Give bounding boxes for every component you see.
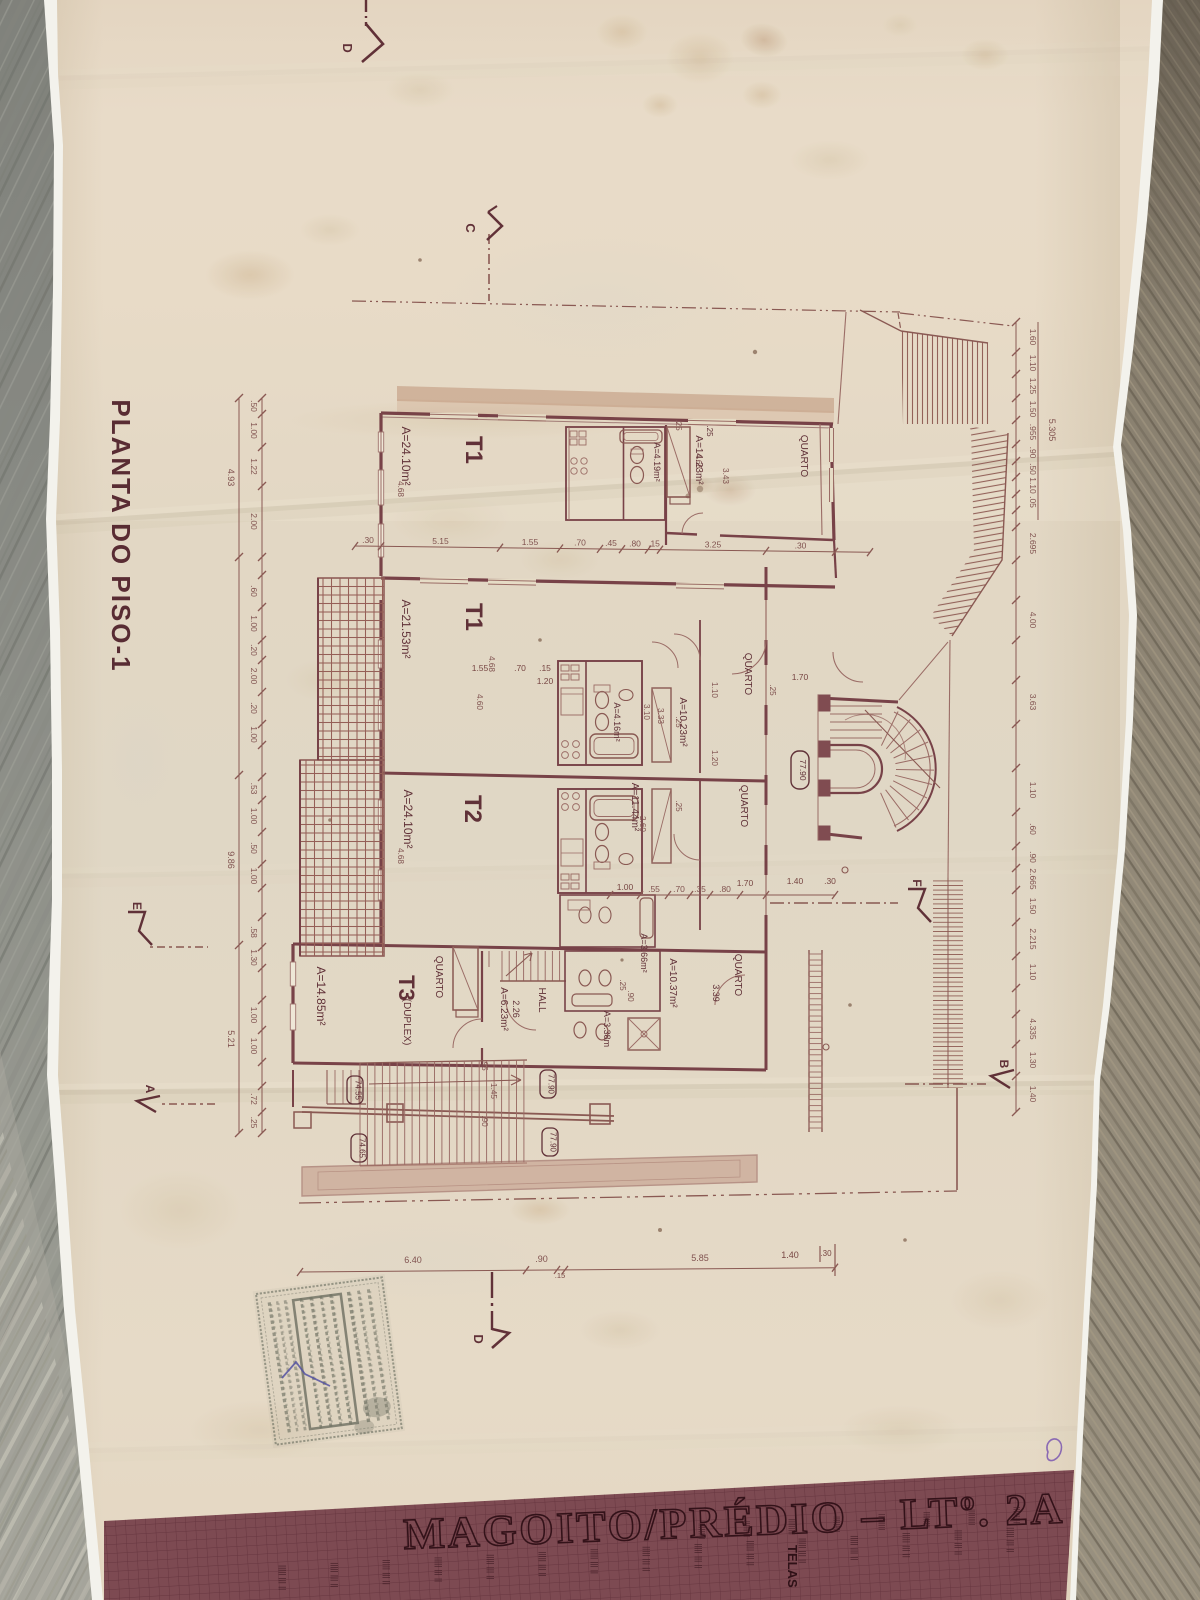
- svg-text:77.90: 77.90: [798, 759, 808, 781]
- svg-text:1.50: 1.50: [1028, 898, 1038, 915]
- svg-text:.80: .80: [629, 538, 641, 548]
- svg-text:||||| ||| ||: ||||| ||| ||: [278, 1565, 287, 1590]
- svg-text:1.00: 1.00: [249, 868, 259, 885]
- svg-text:3.25: 3.25: [705, 539, 722, 549]
- svg-text:.30: .30: [795, 540, 807, 550]
- svg-text:1.40: 1.40: [1028, 1086, 1038, 1103]
- svg-text:.15: .15: [648, 539, 660, 549]
- svg-text:1.70: 1.70: [792, 672, 809, 682]
- svg-text:6.40: 6.40: [404, 1255, 422, 1265]
- svg-text:1.50: 1.50: [1028, 401, 1038, 418]
- svg-text:1.40: 1.40: [787, 876, 804, 886]
- svg-text:.25: .25: [249, 1117, 259, 1129]
- svg-text:B: B: [997, 1060, 1011, 1069]
- svg-text:1.30: 1.30: [249, 949, 259, 966]
- svg-text:.72: .72: [249, 1093, 259, 1105]
- svg-text:A=3.38m: A=3.38m: [602, 1011, 612, 1047]
- svg-text:.25: .25: [705, 425, 714, 437]
- svg-text:1.22: 1.22: [249, 458, 259, 475]
- svg-text:A=4.16m²: A=4.16m²: [612, 702, 622, 741]
- svg-text:74.55: 74.55: [354, 1080, 363, 1101]
- svg-text:T1: T1: [460, 603, 487, 631]
- svg-text:||||| ||| ||: ||||| ||| ||: [902, 1533, 911, 1558]
- svg-text:.90: .90: [1028, 447, 1038, 459]
- svg-text:.30: .30: [820, 1249, 832, 1258]
- svg-text:||||| ||| ||: ||||| ||| ||: [330, 1562, 339, 1587]
- svg-text:4.93: 4.93: [226, 469, 236, 487]
- svg-text:1.00: 1.00: [249, 422, 259, 439]
- svg-text:.90: .90: [535, 1254, 548, 1264]
- svg-text:.58: .58: [249, 926, 259, 938]
- svg-text:QUARTO: QUARTO: [742, 653, 753, 696]
- svg-text:HALL: HALL: [536, 987, 547, 1012]
- svg-text:1.00: 1.00: [617, 882, 634, 892]
- svg-text:3.39: 3.39: [711, 984, 721, 1002]
- svg-text:.90: .90: [480, 1115, 489, 1127]
- svg-text:1.10: 1.10: [1028, 477, 1038, 494]
- svg-text:5.305: 5.305: [1047, 419, 1057, 442]
- svg-text:4.68: 4.68: [487, 656, 496, 672]
- svg-text:E: E: [130, 902, 144, 910]
- svg-text:.20: .20: [249, 702, 259, 714]
- svg-text:2.695: 2.695: [1028, 533, 1038, 555]
- svg-text:.15: .15: [555, 1271, 565, 1280]
- svg-text:.25: .25: [618, 979, 627, 991]
- svg-text:.95: .95: [480, 1059, 489, 1071]
- svg-text:.50: .50: [249, 400, 259, 412]
- svg-text:5.15: 5.15: [432, 536, 449, 546]
- svg-text:2.665: 2.665: [1028, 868, 1038, 890]
- svg-text:1.45: 1.45: [489, 1083, 498, 1099]
- svg-text:.70: .70: [673, 884, 685, 894]
- svg-text:C: C: [463, 223, 478, 233]
- svg-text:||||| ||| ||: ||||| ||| ||: [850, 1535, 859, 1560]
- svg-text:.70: .70: [514, 663, 526, 673]
- svg-text:.60: .60: [249, 585, 259, 597]
- svg-text:A=24.10m²: A=24.10m²: [401, 789, 415, 848]
- svg-text:1.10: 1.10: [1028, 782, 1038, 799]
- svg-text:|||||||||: |||||||||: [878, 1514, 885, 1531]
- svg-text:|||||||||: |||||||||: [698, 1523, 705, 1540]
- svg-text:3.33: 3.33: [656, 708, 665, 724]
- svg-text:T2: T2: [459, 795, 486, 823]
- svg-text:|||||||||: |||||||||: [788, 1518, 795, 1535]
- svg-text:A=14.85m²: A=14.85m²: [314, 966, 328, 1025]
- svg-text:1.00: 1.00: [249, 808, 259, 825]
- svg-text:QUARTO: QUARTO: [732, 954, 743, 997]
- svg-text:||||| ||| ||: ||||| ||| ||: [486, 1554, 495, 1579]
- svg-text:1.00: 1.00: [249, 1007, 259, 1024]
- svg-text:F: F: [910, 879, 924, 886]
- svg-text:D: D: [471, 1334, 486, 1343]
- svg-text:||||| ||| ||: ||||| ||| ||: [590, 1549, 599, 1574]
- svg-text:1.30: 1.30: [1028, 1052, 1038, 1069]
- svg-text:1.55: 1.55: [472, 663, 489, 673]
- svg-text:1.10: 1.10: [710, 682, 719, 698]
- svg-text:.50: .50: [249, 842, 259, 854]
- svg-text:5.21: 5.21: [226, 1030, 236, 1048]
- svg-text:.90: .90: [626, 990, 635, 1002]
- svg-text:.80: .80: [719, 884, 731, 894]
- svg-text:3.10: 3.10: [642, 704, 651, 720]
- svg-text:A=11.44m²: A=11.44m²: [629, 783, 640, 832]
- svg-text:1.20: 1.20: [537, 676, 554, 686]
- svg-text:A=3.66m²: A=3.66m²: [639, 933, 649, 972]
- svg-text:.05: .05: [1028, 496, 1038, 508]
- svg-text:1.00: 1.00: [249, 615, 259, 632]
- svg-text:QUARTO: QUARTO: [798, 435, 809, 478]
- svg-text:A=4.19m²: A=4.19m²: [652, 442, 662, 481]
- svg-text:2.26: 2.26: [511, 1000, 521, 1018]
- svg-text:|||||||||: |||||||||: [833, 1516, 840, 1533]
- svg-text:77.90: 77.90: [549, 1132, 558, 1153]
- svg-text:3.43: 3.43: [721, 468, 730, 484]
- svg-text:QUARTO: QUARTO: [738, 785, 749, 828]
- svg-text:|||||||||: |||||||||: [743, 1521, 750, 1538]
- svg-text:T3: T3: [394, 975, 419, 1001]
- svg-text:2.00: 2.00: [249, 513, 259, 530]
- svg-text:.50: .50: [1028, 463, 1038, 475]
- svg-text:||||| ||| ||: ||||| ||| ||: [954, 1530, 963, 1555]
- svg-text:||||| ||| ||: ||||| ||| ||: [382, 1560, 391, 1585]
- svg-text:||||| ||| ||: ||||| ||| ||: [746, 1541, 755, 1566]
- svg-text:1.70: 1.70: [737, 878, 754, 888]
- svg-text:.35: .35: [694, 884, 706, 894]
- svg-text:.955: .955: [1028, 424, 1038, 441]
- svg-text:.20: .20: [249, 644, 259, 656]
- svg-text:||||| ||| ||: ||||| ||| ||: [538, 1551, 547, 1576]
- svg-text:|||||||||: |||||||||: [1013, 1507, 1020, 1524]
- svg-text:1.10: 1.10: [1028, 355, 1038, 372]
- svg-text:4.335: 4.335: [1028, 1018, 1038, 1040]
- svg-text:.53: .53: [249, 783, 259, 795]
- svg-text:74.65: 74.65: [358, 1138, 367, 1159]
- svg-text:4.00: 4.00: [1028, 612, 1038, 629]
- svg-text:1.25: 1.25: [1028, 378, 1038, 395]
- svg-text:D: D: [340, 43, 355, 52]
- svg-text:1.20: 1.20: [710, 750, 719, 766]
- svg-text:1.55: 1.55: [522, 537, 539, 547]
- svg-text:.55: .55: [648, 884, 660, 894]
- svg-text:.15: .15: [539, 663, 551, 673]
- svg-text:||||| ||| ||: ||||| ||| ||: [434, 1557, 443, 1582]
- svg-text:|||||||||: |||||||||: [923, 1511, 930, 1528]
- svg-text:1.60: 1.60: [1028, 329, 1038, 346]
- svg-text:PLANTA DO PISO-1: PLANTA DO PISO-1: [106, 399, 136, 672]
- svg-text:.30: .30: [824, 876, 836, 886]
- svg-text:.30: .30: [362, 535, 374, 545]
- svg-text:.25: .25: [768, 684, 777, 696]
- svg-text:A=10.23m²: A=10.23m²: [677, 697, 688, 747]
- svg-text:A=6.23m²: A=6.23m²: [498, 987, 509, 1031]
- svg-text:4.60: 4.60: [475, 694, 484, 710]
- svg-text:QUARTO: QUARTO: [433, 956, 444, 999]
- svg-text:1.40: 1.40: [781, 1250, 799, 1260]
- svg-text:4.68: 4.68: [396, 848, 405, 864]
- svg-text:2.00: 2.00: [249, 668, 259, 685]
- svg-text:(DUPLEX): (DUPLEX): [401, 999, 412, 1046]
- svg-text:A=10.37m²: A=10.37m²: [667, 958, 678, 1008]
- svg-text:|||||||||: |||||||||: [968, 1509, 975, 1526]
- svg-text:.25: .25: [674, 800, 683, 812]
- svg-text:9.86: 9.86: [226, 851, 236, 869]
- svg-text:1.10: 1.10: [1028, 964, 1038, 981]
- svg-text:A=24.10m²: A=24.10m²: [399, 426, 413, 485]
- svg-text:.90: .90: [1028, 851, 1038, 863]
- svg-text:.45: .45: [605, 538, 617, 548]
- svg-text:2.215: 2.215: [1028, 928, 1038, 950]
- svg-text:||||| ||| ||: ||||| ||| ||: [642, 1546, 651, 1571]
- svg-text:5.85: 5.85: [691, 1253, 709, 1263]
- svg-text:A=21.53m²: A=21.53m²: [399, 599, 413, 658]
- svg-text:.25: .25: [674, 419, 683, 431]
- svg-text:1.00: 1.00: [249, 1038, 259, 1055]
- svg-text:A=14.23m²: A=14.23m²: [693, 435, 704, 485]
- svg-text:3.63: 3.63: [1028, 694, 1038, 711]
- svg-text:77.90: 77.90: [547, 1074, 556, 1095]
- svg-text:||||| ||| ||: ||||| ||| ||: [1006, 1527, 1015, 1552]
- svg-text:.60: .60: [1028, 823, 1038, 835]
- svg-text:TELAS: TELAS: [785, 1545, 800, 1588]
- svg-text:T1: T1: [460, 436, 487, 464]
- svg-text:||||| ||| ||: ||||| ||| ||: [694, 1543, 703, 1568]
- svg-text:.70: .70: [574, 538, 586, 548]
- svg-text:1.00: 1.00: [249, 726, 259, 743]
- svg-text:A: A: [143, 1085, 157, 1094]
